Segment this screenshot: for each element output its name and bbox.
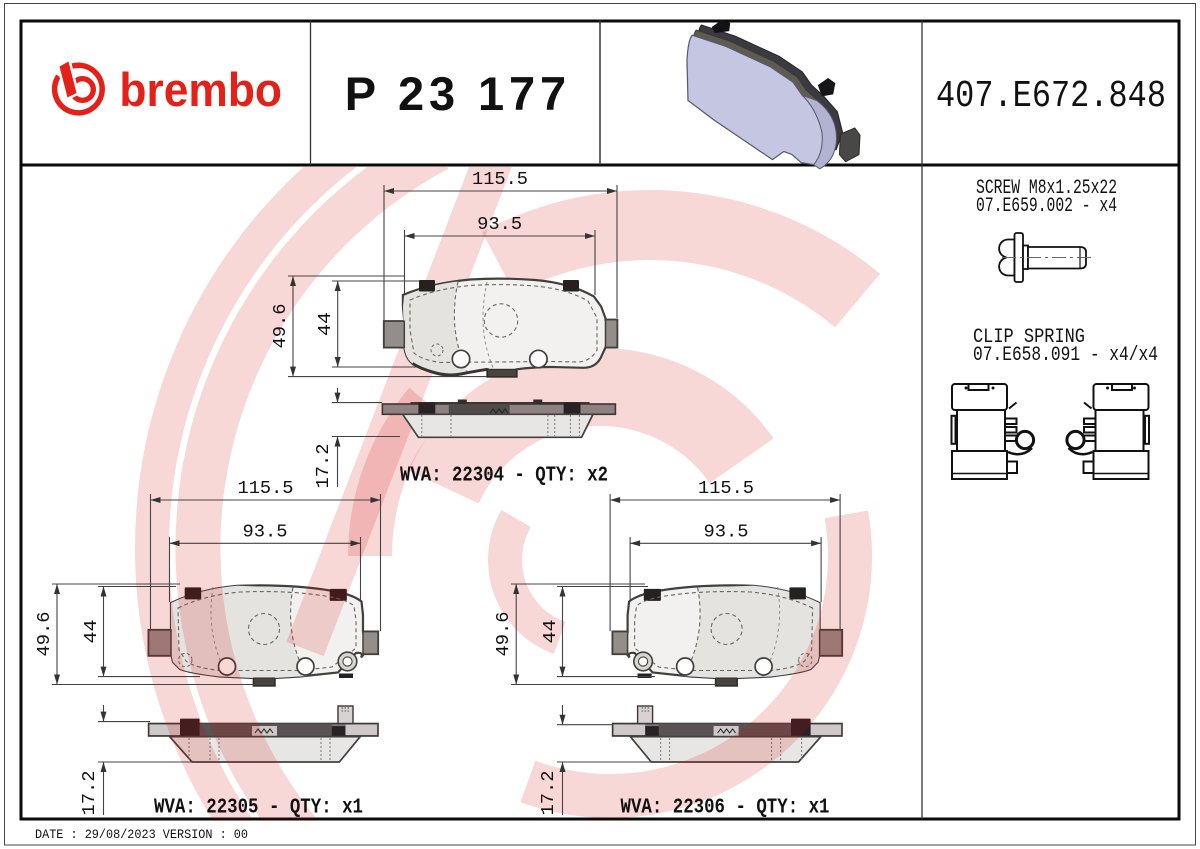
svg-text:115.5: 115.5: [238, 478, 294, 499]
svg-text:44: 44: [540, 620, 561, 644]
svg-text:49.6: 49.6: [34, 612, 55, 657]
svg-text:WVA: 22304 - QTY: x2: WVA: 22304 - QTY: x2: [400, 465, 608, 488]
svg-text:115.5: 115.5: [472, 169, 528, 190]
svg-text:DATE : 29/08/2023 VERSION : 00: DATE : 29/08/2023 VERSION : 00: [35, 827, 248, 842]
svg-text:17.2: 17.2: [79, 771, 100, 816]
svg-text:07.E658.091 - x4/x4: 07.E658.091 - x4/x4: [973, 344, 1158, 367]
svg-text:44: 44: [81, 620, 102, 644]
svg-text:407.E672.848: 407.E672.848: [936, 75, 1166, 118]
svg-text:WVA: 22305 - QTY: x1: WVA: 22305 - QTY: x1: [154, 797, 363, 820]
svg-text:93.5: 93.5: [704, 522, 749, 543]
svg-text:17.2: 17.2: [538, 771, 559, 816]
svg-text:07.E659.002 - x4: 07.E659.002 - x4: [976, 195, 1117, 218]
svg-text:49.6: 49.6: [493, 612, 514, 657]
svg-text:WVA: 22306 - QTY: x1: WVA: 22306 - QTY: x1: [621, 797, 830, 820]
svg-text:49.6: 49.6: [270, 304, 291, 349]
svg-text:44: 44: [315, 312, 336, 336]
svg-text:93.5: 93.5: [477, 214, 522, 235]
svg-text:17.2: 17.2: [313, 444, 334, 489]
svg-text:brembo: brembo: [119, 63, 282, 116]
svg-text:93.5: 93.5: [243, 522, 288, 543]
svg-text:115.5: 115.5: [698, 478, 754, 499]
